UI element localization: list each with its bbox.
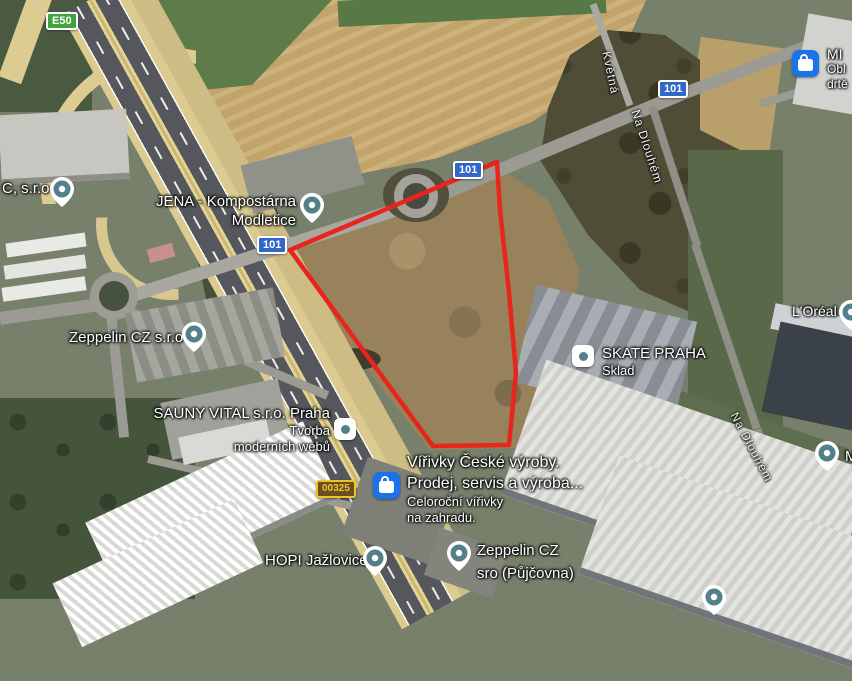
poi-label-skate[interactable]: SKATE PRAHA Sklad (602, 344, 706, 379)
poi-label-virivky-line2: Prodej, servis a výroba... (407, 473, 583, 494)
poi-label-hopi[interactable]: HOPI Jažlovice (265, 551, 368, 570)
map-pin-loreal[interactable] (838, 299, 852, 331)
poi-label-mi-line2: Obl (827, 62, 848, 77)
poi-label-sauny-vital[interactable]: SAUNY VITAL s.r.o. Praha Tvorba moderníc… (150, 404, 330, 455)
route-badge-00325: 00325 (316, 480, 356, 498)
poi-label-loreal[interactable]: L'Oréal (792, 302, 837, 321)
poi-label-zeppelin-pujcovna[interactable]: Zeppelin CZ sro (Půjčovna) (477, 539, 574, 585)
map-pin-bottom-partial[interactable] (701, 584, 727, 616)
bag-body (798, 59, 813, 71)
route-badge-e50: E50 (46, 12, 78, 30)
poi-label-jena[interactable]: JENA - Kompostárna Modletice (118, 192, 296, 230)
poi-dot (579, 352, 588, 361)
poi-label-sauny-line3: moderních webů (150, 439, 330, 455)
map-pin-jena[interactable] (299, 192, 325, 224)
map-canvas[interactable]: { "badges":{"e50":"E50","r101":"101","r0… (0, 0, 852, 599)
poi-label-virivky-line1: Vířivky České výroby. (407, 452, 583, 473)
map-pin-m-partial[interactable] (814, 440, 840, 472)
poi-label-skate-line2: Sklad (602, 363, 706, 379)
poi-label-jena-line1: JENA - Kompostárna (118, 192, 296, 211)
map-pin-c-sro[interactable] (49, 176, 75, 208)
poi-label-mi-line1: MI (827, 47, 848, 62)
poi-label-c-sro[interactable]: C, s.r.o (2, 179, 50, 198)
map-pin-zeppelin-pujcovna[interactable] (446, 540, 472, 572)
route-badge-101-west: 101 (257, 236, 287, 254)
poi-label-zep-line1: Zeppelin CZ (477, 539, 574, 562)
poi-label-virivky-line4: na zahradu. (407, 510, 583, 526)
poi-label-mi[interactable]: MI Obl drtě (827, 47, 848, 92)
poi-label-virivky-line3: Celoroční vířivky (407, 494, 583, 510)
poi-label-virivky[interactable]: Vířivky České výroby. Prodej, servis a v… (407, 452, 583, 526)
map-pin-zeppelin-cz[interactable] (181, 321, 207, 353)
shopping-bag-icon-virivky[interactable] (373, 472, 400, 499)
poi-label-m-partial[interactable]: M (845, 447, 852, 466)
poi-dot (341, 425, 350, 434)
shopping-bag-icon-mi[interactable] (792, 50, 819, 77)
poi-label-sauny-line1: SAUNY VITAL s.r.o. Praha (150, 404, 330, 423)
poi-label-skate-line1: SKATE PRAHA (602, 344, 706, 363)
map-pin-hopi[interactable] (362, 545, 388, 577)
business-square-icon-sauny[interactable] (334, 418, 356, 440)
poi-label-mi-line3: drtě (827, 77, 848, 92)
route-badge-101-center: 101 (453, 161, 483, 179)
route-badge-101-east: 101 (658, 80, 688, 98)
poi-label-sauny-line2: Tvorba (150, 423, 330, 439)
bag-body (379, 481, 394, 493)
poi-label-zeppelin-cz[interactable]: Zeppelin CZ s.r.o (69, 328, 183, 347)
business-square-icon-skate[interactable] (572, 345, 594, 367)
poi-label-jena-line2: Modletice (118, 211, 296, 230)
poi-label-zep-line2: sro (Půjčovna) (477, 562, 574, 585)
